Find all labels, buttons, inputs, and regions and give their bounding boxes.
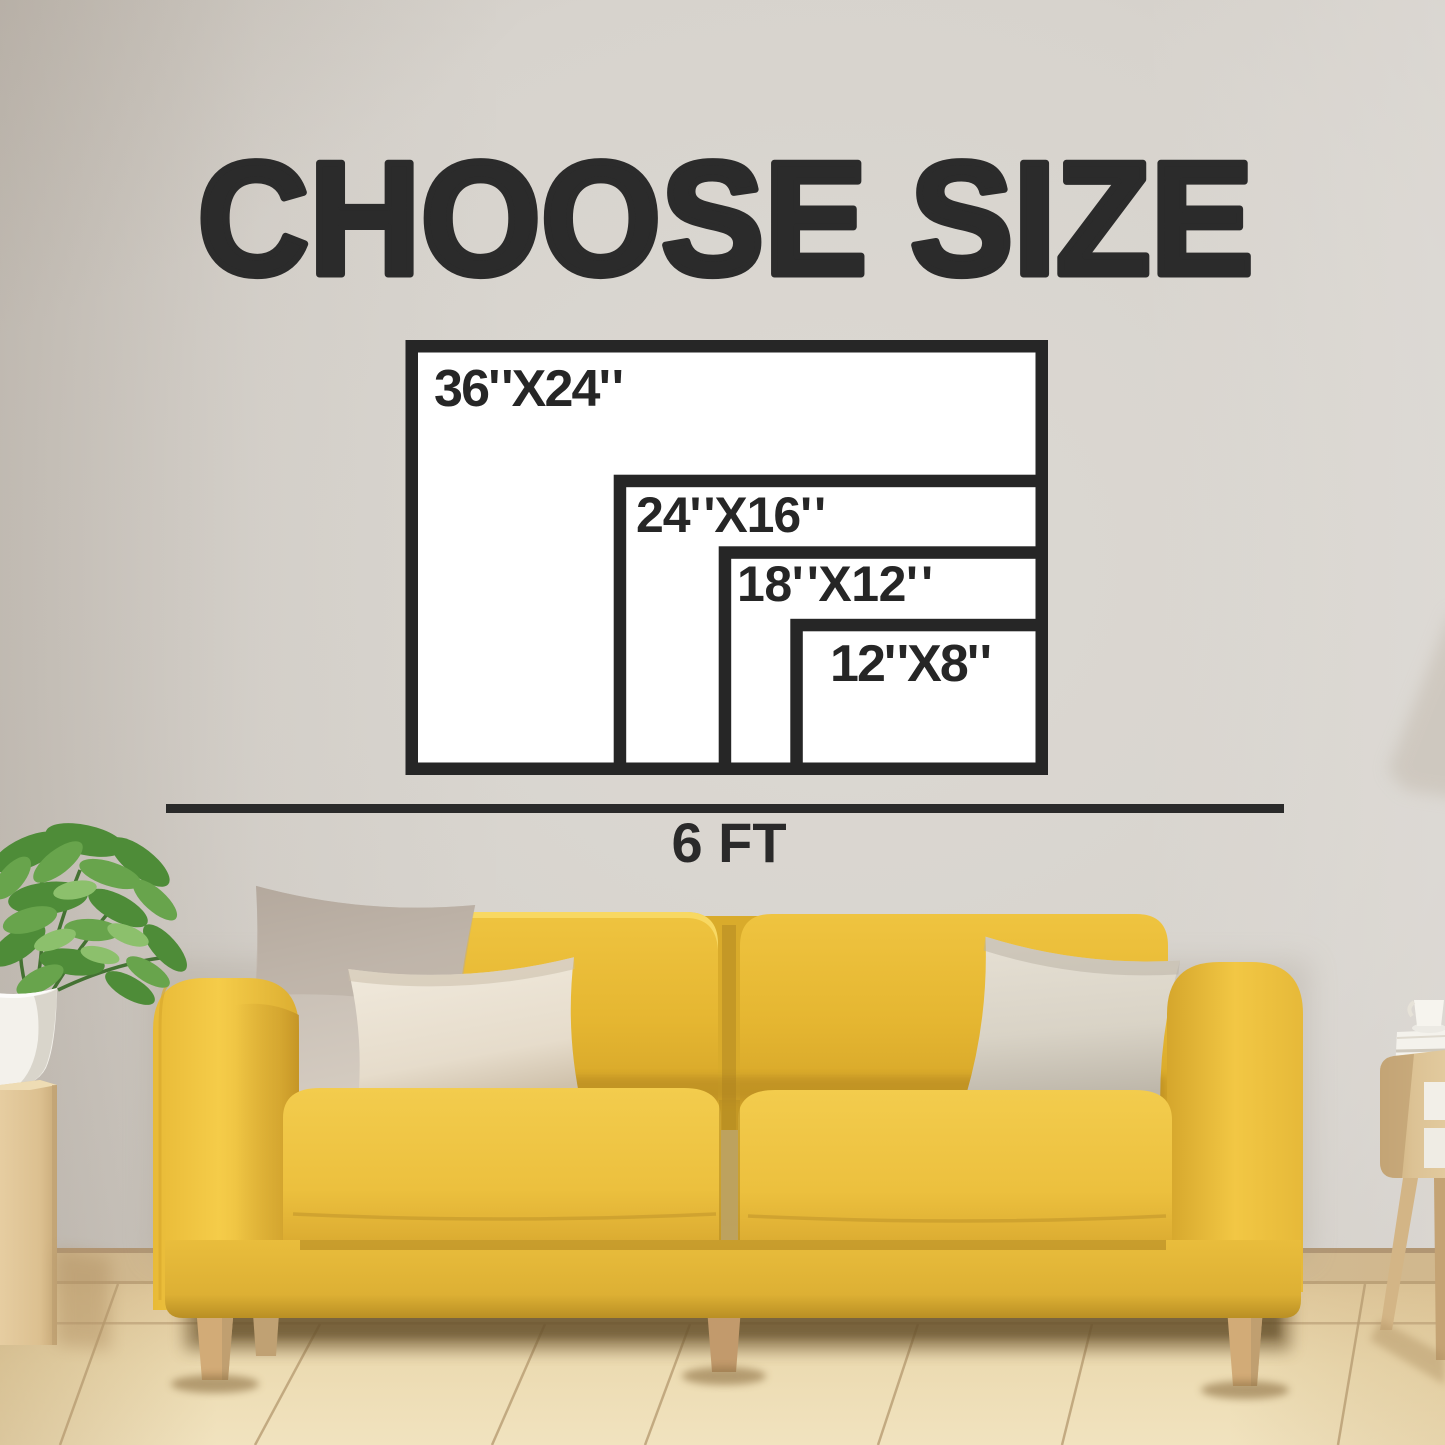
svg-text:24' 'X16' ': 24' 'X16' ': [636, 487, 826, 543]
svg-text:6 FT: 6 FT: [671, 811, 786, 874]
svg-text:36' 'X24' ': 36' 'X24' ': [434, 360, 624, 418]
svg-text:18' 'X12' ': 18' 'X12' ': [737, 556, 933, 612]
svg-text:CHOOSE SIZE: CHOOSE SIZE: [198, 129, 1254, 309]
svg-text:12' 'X8' ': 12' 'X8' ': [830, 635, 992, 693]
